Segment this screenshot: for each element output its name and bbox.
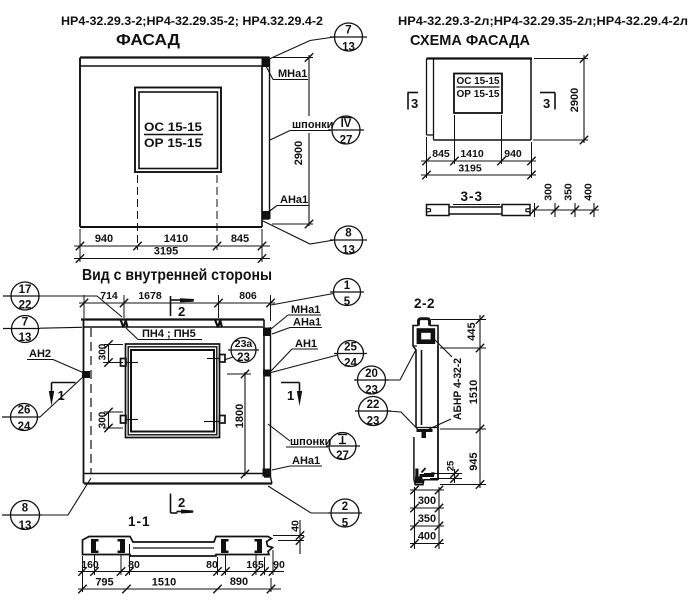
svg-text:2: 2 [178,304,185,319]
svg-text:24: 24 [344,358,357,370]
svg-text:АНа1: АНа1 [292,455,320,467]
svg-text:3195: 3195 [458,163,482,175]
svg-text:300: 300 [98,343,109,360]
svg-text:714: 714 [100,290,118,302]
svg-text:23: 23 [237,352,250,364]
svg-text:24: 24 [18,421,31,433]
svg-text:940: 940 [504,148,522,160]
svg-text:13: 13 [342,245,355,257]
svg-text:ФАСАД: ФАСАД [116,32,181,49]
svg-text:40: 40 [290,520,302,532]
svg-text:945: 945 [468,452,480,470]
svg-text:350: 350 [563,183,575,201]
svg-text:845: 845 [231,233,249,245]
svg-text:940: 940 [95,233,113,245]
svg-text:ОС 15-15: ОС 15-15 [144,120,202,134]
svg-text:1410: 1410 [164,233,188,245]
svg-text:845: 845 [432,148,450,160]
svg-text:1-1: 1-1 [128,514,151,529]
svg-text:795: 795 [95,577,113,589]
svg-text:1410: 1410 [460,148,484,160]
svg-text:2: 2 [342,501,348,513]
svg-text:АНа1: АНа1 [280,194,308,206]
svg-text:3: 3 [411,96,418,111]
svg-text:Вид с внутренней стороны: Вид с внутренней стороны [82,267,272,284]
svg-text:2-2: 2-2 [414,296,435,311]
svg-text:3: 3 [543,96,550,111]
svg-text:8: 8 [345,228,352,240]
svg-text:2900: 2900 [569,88,581,112]
svg-text:2: 2 [178,495,185,510]
svg-text:22: 22 [19,300,32,312]
svg-text:300: 300 [543,183,555,201]
svg-text:27: 27 [340,135,353,147]
svg-text:5: 5 [342,518,349,530]
svg-text:1800: 1800 [234,404,246,428]
svg-text:IV: IV [341,118,352,130]
svg-text:шпонки: шпонки [290,436,331,448]
svg-text:АНа1: АНа1 [293,317,321,329]
svg-text:300: 300 [98,411,109,428]
svg-text:80: 80 [128,559,140,571]
svg-text:ОС 15-15: ОС 15-15 [457,76,500,87]
svg-text:2900: 2900 [293,141,305,165]
svg-text:23: 23 [365,385,378,397]
svg-text:СХЕМА ФАСАДА: СХЕМА ФАСАДА [410,32,530,49]
svg-text:1678: 1678 [138,290,162,302]
svg-text:20: 20 [365,368,378,380]
svg-text:1510: 1510 [152,577,176,589]
svg-text:7: 7 [22,317,28,329]
svg-text:13: 13 [342,42,355,54]
svg-text:23: 23 [367,416,380,428]
svg-text:26: 26 [18,405,31,417]
svg-text:3195: 3195 [154,246,178,258]
svg-text:90: 90 [273,559,285,571]
svg-text:400: 400 [418,531,436,543]
svg-text:3-3: 3-3 [461,189,484,204]
svg-text:5: 5 [344,296,351,308]
svg-text:806: 806 [239,290,257,302]
svg-text:300: 300 [418,495,436,507]
svg-text:8: 8 [22,503,29,515]
svg-text:890: 890 [230,576,248,588]
svg-text:160: 160 [81,559,99,571]
svg-text:25: 25 [446,460,457,471]
svg-text:165: 165 [246,559,264,571]
svg-text:25: 25 [344,342,357,354]
svg-text:350: 350 [418,513,436,525]
svg-text:ОР 15-15: ОР 15-15 [144,136,202,150]
svg-text:1510: 1510 [468,380,480,404]
svg-text:80: 80 [206,559,218,571]
svg-text:445: 445 [466,322,478,340]
svg-text:ОР 15-15: ОР 15-15 [457,89,500,100]
svg-text:1: 1 [287,388,294,403]
svg-text:7: 7 [345,25,351,37]
svg-text:НР4-32.29.3-2;НР4-32.29.35-2;: НР4-32.29.3-2;НР4-32.29.35-2; НР4.32.29.… [61,14,323,28]
svg-text:400: 400 [583,183,595,201]
svg-text:АБНР 4-32-2: АБНР 4-32-2 [452,358,464,420]
svg-text:22: 22 [367,399,380,411]
svg-text:НР4-32.29.3-2л;НР4-32.29.35-2л: НР4-32.29.3-2л;НР4-32.29.35-2л;НР4-32.29… [398,14,688,28]
svg-text:МНа1: МНа1 [291,304,320,316]
svg-text:13: 13 [19,520,32,532]
svg-text:ПН4 ; ПН5: ПН4 ; ПН5 [142,328,196,340]
svg-text:АН1: АН1 [295,338,317,350]
svg-text:шпонки: шпонки [292,119,333,131]
svg-text:17: 17 [19,284,32,296]
svg-text:АН2: АН2 [29,348,51,360]
svg-text:13: 13 [19,332,32,344]
svg-text:МНа1: МНа1 [278,68,307,80]
svg-text:23а: 23а [235,338,253,350]
svg-text:1: 1 [344,280,351,292]
svg-text:27: 27 [336,450,349,462]
